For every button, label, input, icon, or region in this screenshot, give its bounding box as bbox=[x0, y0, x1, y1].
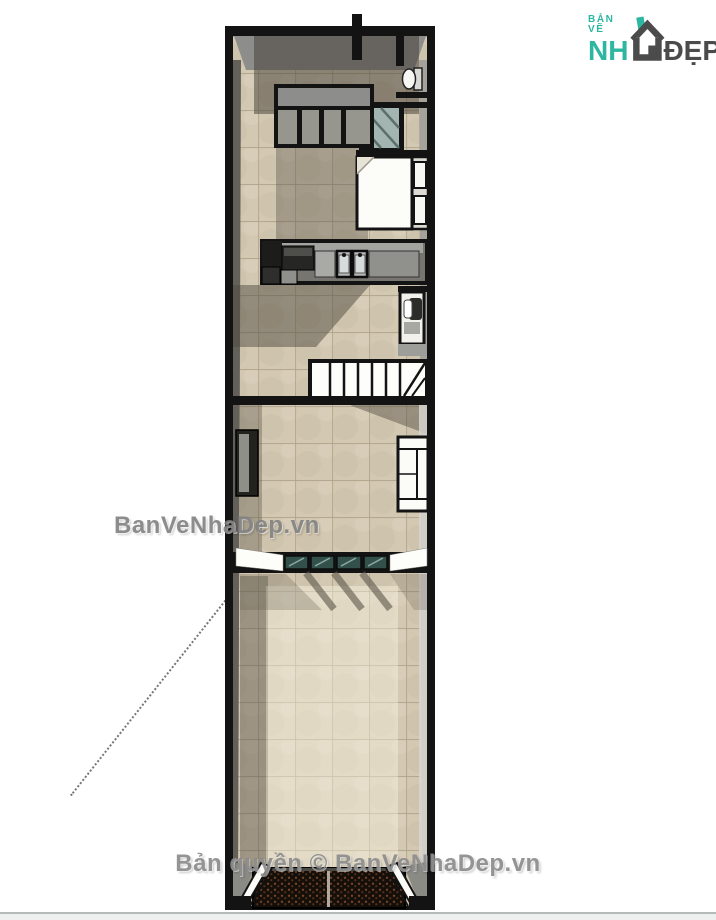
vent-stub bbox=[352, 14, 362, 60]
house-icon bbox=[629, 14, 666, 66]
watermark-footer: Bản quyền © BanVeNhaDep.vn bbox=[0, 850, 716, 878]
kitchen-counter bbox=[262, 241, 427, 284]
toilet-icon bbox=[403, 68, 423, 90]
void-railing bbox=[276, 86, 372, 146]
mid-divider-wall bbox=[233, 396, 427, 405]
bath-partition bbox=[396, 26, 404, 66]
floor-plan-render bbox=[0, 0, 716, 918]
logo-tagline: BẢN VẼ bbox=[588, 15, 632, 35]
sofa-icon bbox=[398, 437, 428, 511]
watermark-center: BanVeNhaDep.vn bbox=[114, 512, 320, 540]
under-stair-wc bbox=[398, 286, 427, 356]
staircase-icon bbox=[308, 359, 427, 399]
wardrobe-icon bbox=[236, 430, 258, 496]
logo-name-suffix: ĐẸP bbox=[663, 37, 716, 65]
screenshot-stage: BẢN VẼ NH ĐẸP BanVeNhaDep.vn Bản quyền ©… bbox=[0, 0, 716, 918]
logo-name-prefix: NH bbox=[588, 37, 628, 65]
double-bed-icon bbox=[356, 150, 428, 229]
site-logo: BẢN VẼ NH ĐẸP bbox=[588, 14, 716, 65]
double-sink-icon bbox=[337, 251, 367, 277]
